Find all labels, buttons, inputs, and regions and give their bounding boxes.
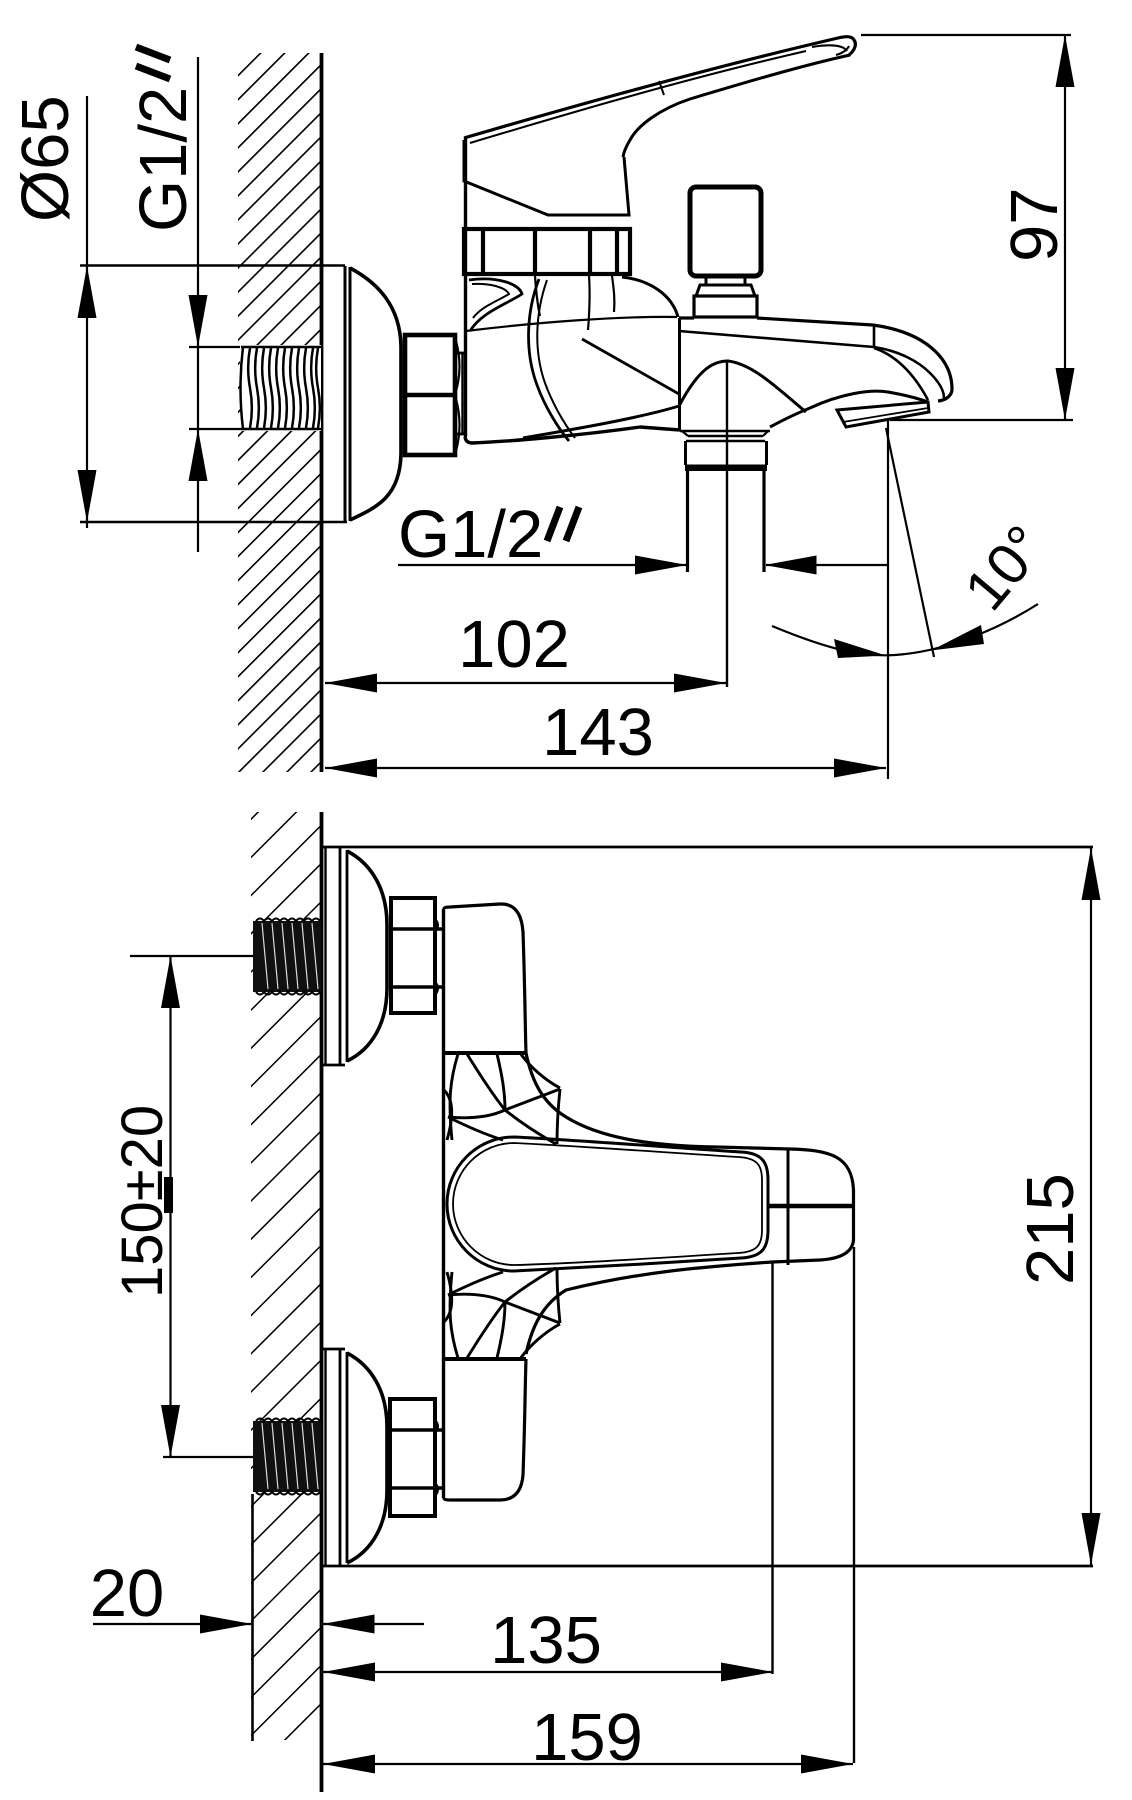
svg-text:102: 102	[458, 607, 570, 682]
svg-text:135: 135	[490, 1603, 602, 1678]
svg-text:G1/2: G1/2	[126, 87, 201, 232]
svg-text:215: 215	[1013, 1173, 1088, 1285]
svg-text:97: 97	[997, 187, 1072, 262]
svg-text:Ø65: Ø65	[8, 95, 83, 222]
svg-text:143: 143	[542, 695, 654, 770]
svg-text:20: 20	[90, 1556, 165, 1631]
svg-text:159: 159	[531, 1700, 643, 1775]
svg-text:150±20: 150±20	[110, 1105, 175, 1298]
svg-text:G1/2: G1/2	[398, 497, 543, 572]
